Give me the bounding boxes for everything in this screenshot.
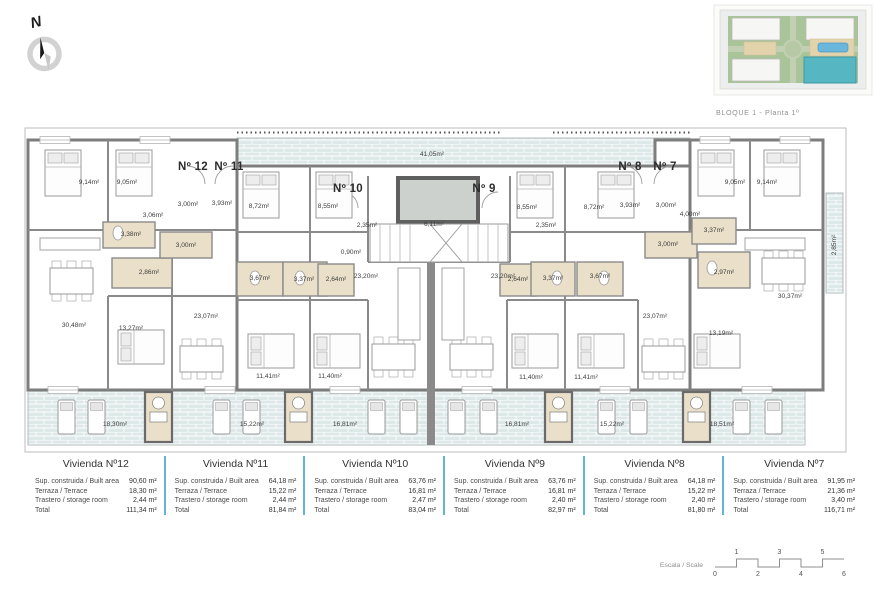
room-area-label: 3,93m² <box>212 200 233 207</box>
unit-row-value: 2,40 m² <box>692 496 716 506</box>
unit-row-label: Trastero / storage room <box>35 496 108 506</box>
room-area-label: 3,00m² <box>658 241 679 248</box>
unit-row-label: Sup. construida / Built area <box>594 477 678 487</box>
unit-row-label: Total <box>35 506 50 516</box>
unit-row-label: Terraza / Terrace <box>35 487 87 497</box>
room-area-label: 23,20m² <box>354 273 379 280</box>
unit-data-row: Trastero / storage room2,40 m² <box>454 496 576 506</box>
room-area-label: 6,11m² <box>424 221 445 228</box>
room-area-label: 30,37m² <box>778 293 803 300</box>
unit-name: Vivienda Nº11 <box>175 458 297 470</box>
unit-row-label: Trastero / storage room <box>175 496 248 506</box>
scale-number-top: 3 <box>778 549 782 556</box>
room-area-label: 18,51m² <box>710 421 735 428</box>
unit-row-label: Trastero / storage room <box>733 496 806 506</box>
unit-row-value: 2,47 m² <box>412 496 436 506</box>
unit-row-value: 2,44 m² <box>133 496 157 506</box>
room-area-label: 11,40m² <box>519 374 544 381</box>
unit-row-value: 91,95 m² <box>827 477 855 487</box>
apartment-number-label: Nº 10 <box>333 183 363 195</box>
room-area-label: 8,55m² <box>517 204 538 211</box>
unit-row-label: Terraza / Terrace <box>594 487 646 497</box>
unit-row-value: 64,18 m² <box>688 477 716 487</box>
unit-row-value: 63,76 m² <box>408 477 436 487</box>
unit-row-value: 82,97 m² <box>548 506 576 516</box>
unit-data-row: Terraza / Terrace16,81 m² <box>454 487 576 497</box>
room-area-label: 23,07m² <box>194 313 219 320</box>
unit-row-value: 81,80 m² <box>688 506 716 516</box>
apartment-number-label: Nº 8 <box>618 161 642 173</box>
unit-name: Vivienda Nº10 <box>314 458 436 470</box>
unit-data-row: Terraza / Terrace21,36 m² <box>733 487 855 497</box>
room-area-label: 2,86m² <box>139 269 160 276</box>
room-area-label: 3,37m² <box>704 227 725 234</box>
unit-data-row: Trastero / storage room3,40 m² <box>733 496 855 506</box>
unit-row-label: Total <box>314 506 329 516</box>
unit-column: Vivienda Nº8Sup. construida / Built area… <box>583 456 723 515</box>
central-party-wall <box>427 262 435 445</box>
unit-data-row: Total83,04 m² <box>314 506 436 516</box>
room-area-label: 3,37m² <box>294 276 315 283</box>
unit-name: Vivienda Nº12 <box>35 458 157 470</box>
unit-row-value: 3,40 m² <box>831 496 855 506</box>
unit-name: Vivienda Nº8 <box>594 458 716 470</box>
room-area-label: 11,40m² <box>318 373 343 380</box>
apartment-number-label: Nº 11 <box>214 161 244 173</box>
unit-data-row: Terraza / Terrace15,22 m² <box>175 487 297 497</box>
unit-row-label: Terraza / Terrace <box>454 487 506 497</box>
unit-row-label: Sup. construida / Built area <box>314 477 398 487</box>
room-area-label: 3,06m² <box>143 212 164 219</box>
unit-row-value: 116,71 m² <box>824 506 855 516</box>
unit-row-value: 64,18 m² <box>269 477 297 487</box>
unit-row-label: Total <box>733 506 748 516</box>
room-area-label: 2,64m² <box>326 276 347 283</box>
scale-number-bottom: 4 <box>799 571 803 578</box>
unit-row-label: Terraza / Terrace <box>733 487 785 497</box>
room-area-label: 2,35m² <box>536 222 557 229</box>
unit-data-row: Sup. construida / Built area90,60 m² <box>35 477 157 487</box>
unit-data-row: Trastero / storage room2,44 m² <box>35 496 157 506</box>
unit-row-label: Sup. construida / Built area <box>35 477 119 487</box>
units-summary-table: Vivienda Nº12Sup. construida / Built are… <box>26 456 862 515</box>
room-area-label: 13,19m² <box>709 330 734 337</box>
site-plaza <box>744 42 776 55</box>
room-area-label: 8,72m² <box>249 203 270 210</box>
unit-row-value: 15,22 m² <box>269 487 297 497</box>
room-area-label: 9,05m² <box>117 179 138 186</box>
elevator-shaft <box>398 178 478 222</box>
room-area-label: 3,93m² <box>620 202 641 209</box>
room-area-label: 23,07m² <box>643 313 668 320</box>
unit-row-value: 16,81 m² <box>408 487 436 497</box>
site-building-sw <box>732 59 780 81</box>
unit-row-value: 63,76 m² <box>548 477 576 487</box>
unit-column: Vivienda Nº11Sup. construida / Built are… <box>164 456 304 515</box>
room-area-label: 9,05m² <box>725 179 746 186</box>
room-area-label: 3,67m² <box>250 275 271 282</box>
room-area-label: 16,81m² <box>505 421 530 428</box>
room-area-label: 3,38m² <box>121 231 142 238</box>
room-area-label: 9,14m² <box>79 179 100 186</box>
room-area-label: 15,22m² <box>600 421 625 428</box>
room-area-label: 41,05m² <box>420 151 445 158</box>
scale-number-top: 5 <box>821 549 825 556</box>
unit-name: Vivienda Nº7 <box>733 458 855 470</box>
room-area-label: 16,81m² <box>333 421 358 428</box>
room-area-label: 11,41m² <box>574 374 599 381</box>
unit-column: Vivienda Nº7Sup. construida / Built area… <box>722 456 862 515</box>
unit-row-label: Total <box>594 506 609 516</box>
unit-row-value: 111,34 m² <box>126 506 156 516</box>
unit-data-row: Sup. construida / Built area91,95 m² <box>733 477 855 487</box>
scale-number-bottom: 2 <box>756 571 760 578</box>
unit-row-label: Sup. construida / Built area <box>733 477 817 487</box>
unit-row-value: 18,30 m² <box>129 487 157 497</box>
unit-data-row: Total116,71 m² <box>733 506 855 516</box>
unit-row-value: 16,81 m² <box>548 487 576 497</box>
north-letter: N <box>29 13 45 32</box>
scale-number-bottom: 6 <box>842 571 846 578</box>
room-area-label: 2,64m² <box>508 276 529 283</box>
room-area-label: 3,37m² <box>543 275 564 282</box>
staircase <box>370 224 508 262</box>
brochure-page: N BLOQUE 1 - Planta 1º <box>0 0 875 589</box>
room-area-label: 2,97m² <box>714 269 735 276</box>
scale-bar-label: Escala / Scale <box>660 562 703 569</box>
unit-data-row: Total111,34 m² <box>35 506 157 516</box>
apartment-number-label: Nº 9 <box>472 183 495 195</box>
unit-data-row: Trastero / storage room2,40 m² <box>594 496 716 506</box>
site-plan-caption: BLOQUE 1 - Planta 1º <box>716 108 799 117</box>
floorplan: 9,14m²9,05m²3,06m²3,00m²3,93m²3,38m²3,00… <box>25 128 846 452</box>
room-area-label: 3,67m² <box>590 273 611 280</box>
unit-column: Vivienda Nº12Sup. construida / Built are… <box>26 456 164 515</box>
unit-name: Vivienda Nº9 <box>454 458 576 470</box>
room-area-label: 8,72m² <box>584 204 605 211</box>
unit-row-value: 83,04 m² <box>408 506 436 516</box>
north-compass: N <box>20 11 62 74</box>
scale-number-bottom: 0 <box>713 571 717 578</box>
room-area-label: 30,48m² <box>62 322 87 329</box>
scale-bar-line <box>715 559 844 567</box>
unit-row-label: Trastero / storage room <box>594 496 667 506</box>
apartment-number-label: Nº 12 <box>178 161 208 173</box>
unit-row-value: 15,22 m² <box>688 487 716 497</box>
unit-row-value: 2,44 m² <box>273 496 297 506</box>
room-area-label: 15,22m² <box>240 421 265 428</box>
unit-data-row: Terraza / Terrace16,81 m² <box>314 487 436 497</box>
unit-data-row: Sup. construida / Built area63,76 m² <box>454 477 576 487</box>
site-building-ne <box>806 18 854 40</box>
unit-row-label: Sup. construida / Built area <box>175 477 259 487</box>
unit-data-row: Sup. construida / Built area64,18 m² <box>594 477 716 487</box>
room-area-label: 2,35m² <box>357 222 378 229</box>
unit-row-label: Total <box>175 506 190 516</box>
unit-row-value: 90,60 m² <box>129 477 157 487</box>
unit-row-label: Trastero / storage room <box>314 496 387 506</box>
unit-data-row: Sup. construida / Built area64,18 m² <box>175 477 297 487</box>
unit-data-row: Terraza / Terrace18,30 m² <box>35 487 157 497</box>
site-pool <box>818 43 848 52</box>
scale-number-top: 1 <box>735 549 739 556</box>
unit-data-row: Trastero / storage room2,47 m² <box>314 496 436 506</box>
unit-column: Vivienda Nº10Sup. construida / Built are… <box>303 456 443 515</box>
scale-bar: Escala / Scale 1350246 <box>660 549 846 578</box>
unit-row-label: Terraza / Terrace <box>314 487 366 497</box>
room-area-label: 0,90m² <box>341 249 362 256</box>
unit-row-label: Terraza / Terrace <box>175 487 227 497</box>
room-area-label: 13,27m² <box>119 325 144 332</box>
room-area-label: 11,41m² <box>256 373 281 380</box>
unit-data-row: Total81,84 m² <box>175 506 297 516</box>
room-area-label: 3,00m² <box>176 242 197 249</box>
unit-row-label: Sup. construida / Built area <box>454 477 538 487</box>
room-area-label: 2,85m² <box>831 234 838 255</box>
unit-data-row: Total81,80 m² <box>594 506 716 516</box>
apartment-number-label: Nº 7 <box>653 161 676 173</box>
unit-row-label: Trastero / storage room <box>454 496 527 506</box>
unit-row-value: 21,36 m² <box>827 487 855 497</box>
room-area-label: 9,14m² <box>757 179 778 186</box>
room-area-label: 3,00m² <box>178 201 199 208</box>
room-area-label: 3,00m² <box>656 202 677 209</box>
room-area-label: 4,00m² <box>680 211 701 218</box>
unit-row-value: 2,40 m² <box>552 496 576 506</box>
unit-data-row: Sup. construida / Built area63,76 m² <box>314 477 436 487</box>
unit-data-row: Total82,97 m² <box>454 506 576 516</box>
unit-row-label: Total <box>454 506 469 516</box>
site-plan-thumbnail <box>714 5 872 95</box>
site-building-bloque1 <box>804 57 856 83</box>
unit-data-row: Terraza / Terrace15,22 m² <box>594 487 716 497</box>
room-area-label: 8,55m² <box>318 203 339 210</box>
room-area-label: 18,30m² <box>103 421 128 428</box>
unit-row-value: 81,84 m² <box>269 506 297 516</box>
unit-data-row: Trastero / storage room2,44 m² <box>175 496 297 506</box>
site-building-nw <box>732 18 780 40</box>
unit-column: Vivienda Nº9Sup. construida / Built area… <box>443 456 583 515</box>
